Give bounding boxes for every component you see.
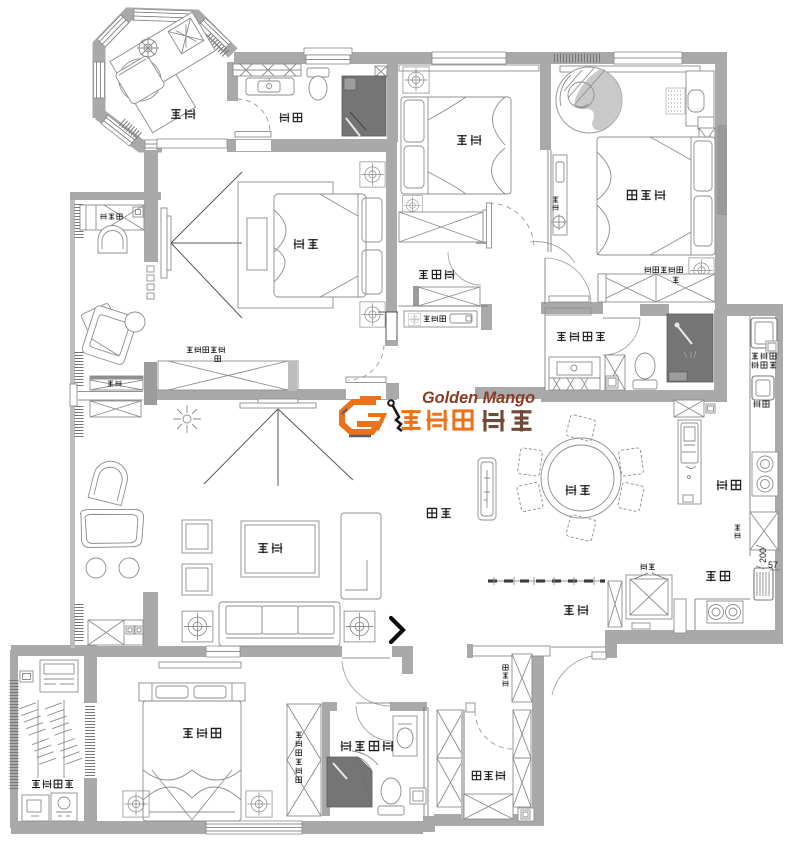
svg-text:Golden Mango: Golden Mango	[422, 389, 535, 407]
svg-text:57: 57	[768, 560, 778, 570]
svg-text:200: 200	[758, 548, 768, 563]
